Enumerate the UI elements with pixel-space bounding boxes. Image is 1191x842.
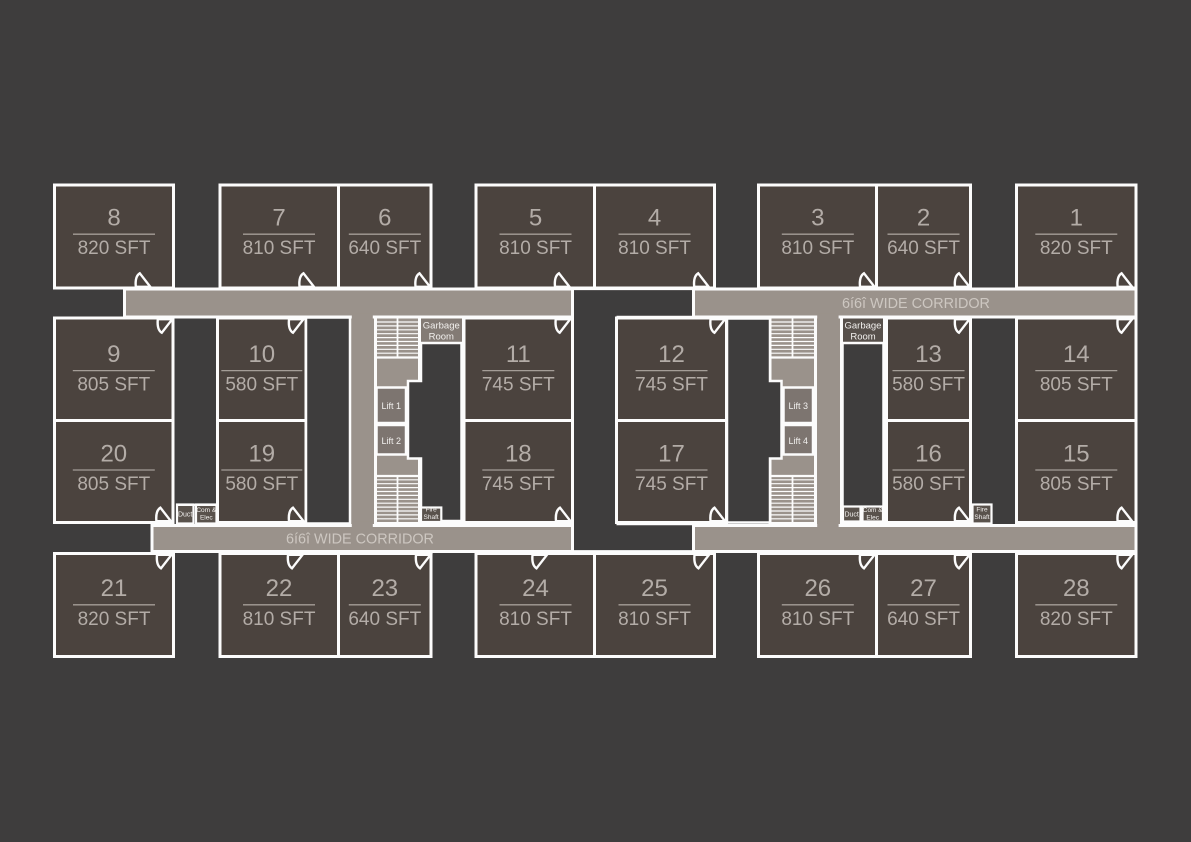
svg-text:Duct: Duct	[844, 511, 858, 518]
svg-text:1: 1	[1070, 205, 1083, 232]
svg-text:580 SFT: 580 SFT	[225, 474, 298, 495]
svg-text:745 SFT: 745 SFT	[635, 375, 708, 396]
svg-text:745 SFT: 745 SFT	[635, 474, 708, 495]
svg-text:810 SFT: 810 SFT	[499, 238, 572, 259]
svg-text:640 SFT: 640 SFT	[887, 238, 960, 259]
svg-text:19: 19	[248, 440, 275, 467]
svg-text:27: 27	[910, 575, 937, 602]
svg-text:810 SFT: 810 SFT	[243, 238, 316, 259]
svg-text:820 SFT: 820 SFT	[78, 609, 151, 630]
svg-text:Lift 1: Lift 1	[382, 401, 402, 411]
svg-text:Lift 2: Lift 2	[382, 436, 402, 446]
svg-text:4: 4	[648, 205, 661, 232]
svg-text:Duct: Duct	[178, 511, 192, 518]
svg-text:25: 25	[641, 575, 668, 602]
svg-text:21: 21	[101, 575, 128, 602]
svg-text:20: 20	[100, 440, 127, 467]
svg-text:Elec: Elec	[866, 514, 879, 521]
svg-text:Shaft: Shaft	[974, 514, 989, 521]
svg-text:810 SFT: 810 SFT	[618, 238, 691, 259]
svg-text:745 SFT: 745 SFT	[482, 474, 555, 495]
svg-text:580 SFT: 580 SFT	[892, 375, 965, 396]
svg-text:18: 18	[505, 440, 532, 467]
svg-text:Lift 4: Lift 4	[789, 436, 809, 446]
svg-text:640 SFT: 640 SFT	[887, 609, 960, 630]
svg-text:16: 16	[915, 440, 942, 467]
svg-text:805 SFT: 805 SFT	[1040, 474, 1113, 495]
svg-text:820 SFT: 820 SFT	[78, 238, 151, 259]
svg-text:Com &: Com &	[196, 507, 217, 514]
svg-text:805 SFT: 805 SFT	[1040, 375, 1113, 396]
svg-text:580 SFT: 580 SFT	[892, 474, 965, 495]
svg-text:580 SFT: 580 SFT	[225, 375, 298, 396]
svg-text:23: 23	[371, 575, 398, 602]
svg-text:Shaft: Shaft	[424, 514, 439, 521]
svg-text:810 SFT: 810 SFT	[243, 609, 316, 630]
svg-text:15: 15	[1063, 440, 1090, 467]
svg-text:6í6î WIDE CORRIDOR: 6í6î WIDE CORRIDOR	[842, 296, 990, 312]
svg-text:810 SFT: 810 SFT	[618, 609, 691, 630]
svg-text:640 SFT: 640 SFT	[348, 609, 421, 630]
svg-text:28: 28	[1063, 575, 1090, 602]
svg-text:Fire: Fire	[425, 507, 437, 514]
svg-text:Garbage: Garbage	[423, 321, 460, 332]
svg-text:13: 13	[915, 341, 942, 368]
svg-text:820 SFT: 820 SFT	[1040, 609, 1113, 630]
svg-text:9: 9	[107, 341, 120, 368]
svg-text:Room: Room	[429, 332, 454, 343]
svg-text:8: 8	[107, 205, 120, 232]
svg-text:10: 10	[248, 341, 275, 368]
svg-text:Elec: Elec	[200, 514, 213, 521]
svg-text:820 SFT: 820 SFT	[1040, 238, 1113, 259]
svg-text:Fire: Fire	[976, 507, 988, 514]
svg-text:6: 6	[378, 205, 391, 232]
svg-text:24: 24	[522, 575, 549, 602]
svg-text:2: 2	[917, 205, 930, 232]
svg-text:640 SFT: 640 SFT	[348, 238, 421, 259]
svg-text:7: 7	[272, 205, 285, 232]
svg-text:14: 14	[1063, 341, 1090, 368]
svg-text:12: 12	[658, 341, 685, 368]
svg-text:805 SFT: 805 SFT	[77, 474, 150, 495]
svg-text:26: 26	[804, 575, 831, 602]
svg-text:810 SFT: 810 SFT	[499, 609, 572, 630]
svg-text:Garbage: Garbage	[845, 321, 882, 332]
svg-text:22: 22	[266, 575, 293, 602]
svg-text:Room: Room	[850, 332, 875, 343]
svg-text:810 SFT: 810 SFT	[781, 238, 854, 259]
svg-text:Lift 3: Lift 3	[789, 401, 809, 411]
svg-text:810 SFT: 810 SFT	[781, 609, 854, 630]
svg-text:Com &: Com &	[863, 507, 884, 514]
svg-text:805 SFT: 805 SFT	[77, 375, 150, 396]
svg-text:745 SFT: 745 SFT	[482, 375, 555, 396]
svg-text:11: 11	[506, 341, 531, 368]
svg-text:6í6î WIDE CORRIDOR: 6í6î WIDE CORRIDOR	[286, 531, 434, 547]
svg-text:17: 17	[658, 440, 685, 467]
svg-text:3: 3	[811, 205, 824, 232]
svg-text:5: 5	[529, 205, 542, 232]
